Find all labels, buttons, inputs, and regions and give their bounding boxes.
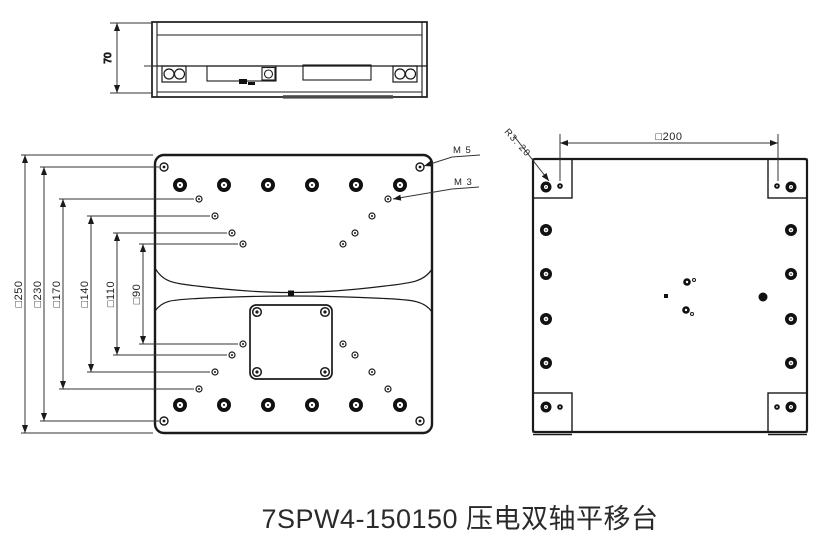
- m3-hole: [240, 241, 246, 247]
- socket-hole: [261, 178, 275, 192]
- side-view: 70: [103, 22, 427, 99]
- flexure-center-link: [288, 291, 294, 297]
- top-view: □250 □230 □170 □140 □110 □90 M 5 M 3: [13, 145, 480, 433]
- m3-hole: [352, 352, 358, 358]
- m3-hole: [240, 341, 246, 347]
- left-bearing-block: [162, 66, 186, 82]
- pin-hole: [557, 404, 563, 410]
- socket-hole: [261, 398, 275, 412]
- satellite-hole: [693, 279, 696, 282]
- platform-hole: [321, 308, 330, 317]
- side-hole-columns: [540, 224, 797, 369]
- m5-hole: [160, 417, 168, 425]
- counterbore-hole: [540, 357, 552, 369]
- dim-200-label: □200: [656, 131, 683, 143]
- m3-hole: [196, 386, 202, 392]
- socket-hole: [173, 398, 187, 412]
- m3-hole: [229, 352, 235, 358]
- socket-hole: [349, 178, 363, 192]
- m3-hole: [369, 369, 375, 375]
- drawing-canvas: 70: [0, 0, 822, 558]
- counterbore-hole: [541, 182, 552, 193]
- technical-drawing-page: 70: [0, 0, 822, 558]
- counterbore-hole: [540, 268, 552, 280]
- m3-hole: [369, 213, 375, 219]
- platform-hole: [321, 368, 330, 377]
- m3-hole: [340, 341, 346, 347]
- counterbore-hole: [785, 268, 797, 280]
- m3-hole: [212, 369, 218, 375]
- filled-hole: [759, 293, 768, 302]
- m5-hole: [160, 163, 168, 171]
- pin-hole: [774, 404, 780, 410]
- base-shadow-band: [283, 95, 393, 98]
- platform-hole: [253, 308, 262, 317]
- socket-hole: [217, 178, 231, 192]
- socket-hole: [305, 178, 319, 192]
- m3-hole: [196, 196, 202, 202]
- m3-hole: [212, 213, 218, 219]
- bottom-view: □200 R3. 20: [502, 127, 807, 435]
- counterbore-hole: [786, 402, 797, 413]
- drawing-caption: 7SPW4-150150 压电双轴平移台: [261, 504, 658, 534]
- m3-hole: [385, 196, 391, 202]
- socket-hole: [217, 398, 231, 412]
- dim-70-label: 70: [103, 52, 114, 64]
- dim-250-label: □250: [13, 281, 25, 308]
- dim-140-label: □140: [79, 281, 91, 308]
- m5-callout-label: M 5: [453, 145, 472, 156]
- height-dimension-70: [110, 23, 157, 93]
- counterbore-hole: [541, 402, 552, 413]
- m3-hole: [385, 386, 391, 392]
- counterbore-hole: [786, 182, 797, 193]
- m5-hole: [416, 417, 424, 425]
- pin-hole: [774, 183, 780, 189]
- dim-230-label: □230: [32, 281, 44, 308]
- platform-hole: [253, 368, 262, 377]
- right-bearing-block: [393, 66, 417, 82]
- socket-hole: [349, 398, 363, 412]
- dim-110-label: □110: [105, 281, 117, 307]
- socket-hole: [393, 178, 407, 192]
- m3-hole: [229, 230, 235, 236]
- corner-radius-label: R3. 20: [502, 127, 533, 160]
- platform-holes: [253, 308, 330, 377]
- m3-hole: [352, 230, 358, 236]
- pin-hole: [557, 183, 563, 189]
- counterbore-hole: [785, 224, 797, 236]
- counterbore-hole: [540, 313, 552, 325]
- m5-hole: [416, 163, 424, 171]
- side-view-body: [152, 22, 427, 99]
- satellite-hole: [691, 313, 694, 316]
- small-dot-hole: [664, 294, 668, 298]
- m3-hole: [340, 241, 346, 247]
- center-hole: [683, 278, 691, 286]
- counterbore-hole: [785, 313, 797, 325]
- center-hole-cluster: [664, 278, 768, 315]
- center-drive-assembly: [207, 66, 276, 85]
- m3-callout-label: M 3: [454, 177, 473, 188]
- center-hole: [682, 306, 690, 314]
- corner-pad-holes: [541, 182, 797, 413]
- dim-170-label: □170: [51, 281, 63, 308]
- recess-pocket: [303, 65, 371, 80]
- socket-hole: [393, 398, 407, 412]
- dim-90-label: □90: [131, 284, 143, 304]
- socket-hole: [305, 398, 319, 412]
- counterbore-hole: [540, 224, 552, 236]
- center-platform: [250, 305, 332, 379]
- socket-hole: [173, 178, 187, 192]
- counterbore-hole: [785, 357, 797, 369]
